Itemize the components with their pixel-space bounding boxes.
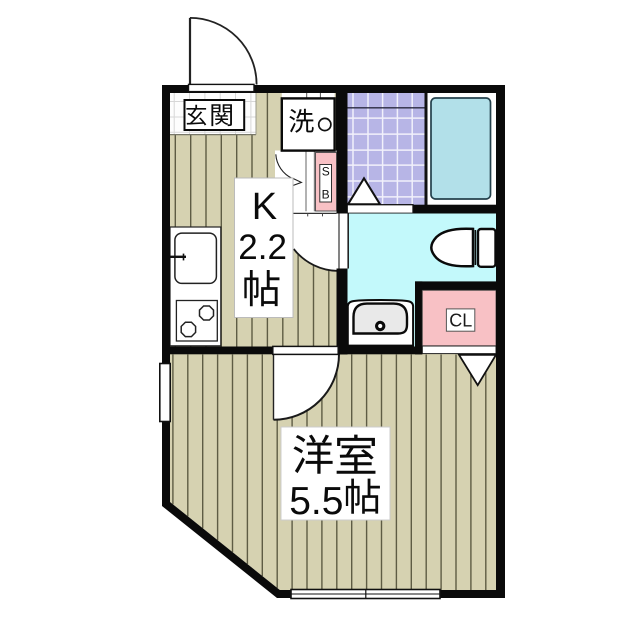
svg-text:K: K — [252, 186, 277, 228]
svg-text:B: B — [322, 188, 330, 202]
svg-text:CL: CL — [449, 311, 472, 331]
svg-text:2.2: 2.2 — [238, 228, 287, 267]
svg-text:5.5: 5.5 — [289, 480, 343, 523]
svg-text:S: S — [322, 165, 330, 179]
